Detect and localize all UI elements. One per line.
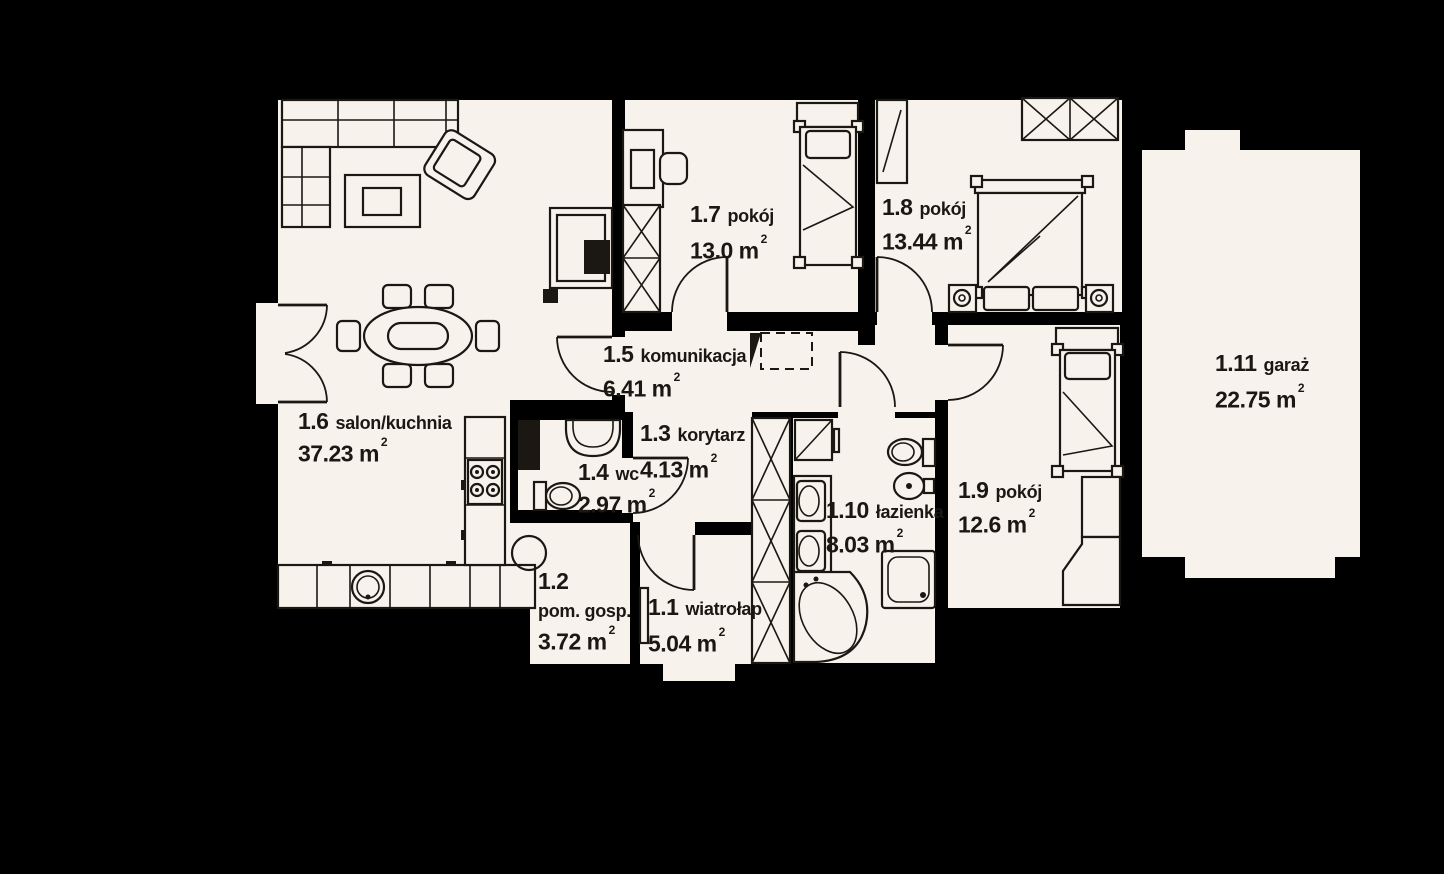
room-label-1-4: 1.4wc 2.97 m2 [578, 459, 653, 521]
room-title: 1.3korytarz [640, 418, 745, 452]
room-label-1-1: 1.1wiatrołap 5.04 m2 [648, 592, 762, 662]
room-area-sup: 2 [609, 623, 616, 637]
room-title: 1.9pokój [958, 476, 1042, 508]
room-area-value: 6.41 m [603, 375, 672, 401]
desk-top [623, 130, 663, 207]
doorway-wiatrolap [640, 522, 695, 535]
bed-post [794, 257, 805, 268]
bed-pillow [984, 287, 1029, 310]
room-name: łazienka [876, 502, 944, 522]
room-area: 2.97 m2 [578, 489, 653, 521]
room-name: pom. gosp. [538, 601, 631, 621]
coffee-table-outer [345, 175, 420, 227]
room-label-1-8: 1.8pokój 13.44 m2 [882, 193, 970, 259]
room-area-sup: 2 [1029, 506, 1036, 520]
room-area: 22.75 m2 [1215, 382, 1309, 418]
room-number: 1.3 [640, 420, 670, 446]
bed-headboard [1056, 328, 1118, 350]
room-name: pokój [995, 482, 1042, 502]
room-name: pokój [727, 206, 774, 226]
bed-headboard [797, 103, 858, 127]
room-title: 1.6salon/kuchnia [298, 408, 452, 438]
floor-corridor-room18 [875, 325, 935, 412]
room-title: 1.11garaż [1215, 348, 1309, 382]
room-area: 37.23 m2 [298, 438, 452, 470]
dining-chair [337, 321, 360, 351]
room-area: 3.72 m2 [538, 626, 631, 658]
room-number: 1.9 [958, 477, 988, 503]
room-area: 13.0 m2 [690, 233, 774, 269]
room-name-line: pom. gosp. [538, 598, 631, 626]
cabinet-handle [461, 480, 465, 490]
wardrobe [623, 205, 660, 312]
room-name: korytarz [677, 425, 745, 445]
room-name: wc [615, 464, 638, 484]
room-number: 1.1 [648, 594, 678, 620]
room-label-1-6: 1.6salon/kuchnia 37.23 m2 [298, 408, 452, 470]
room-name: pokój [919, 199, 966, 219]
room-title: 1.5komunikacja [603, 340, 746, 372]
room-title: 1.7pokój [690, 199, 774, 233]
room-label-1-2: 1.2 pom. gosp. 3.72 m2 [538, 568, 631, 658]
burner-dot [491, 470, 495, 474]
room-label-1-3: 1.3korytarz 4.13 m2 [640, 418, 745, 488]
sofa-vertical [282, 147, 330, 227]
room-area-sup: 2 [381, 435, 388, 449]
nightstand-right [1086, 285, 1113, 312]
room-area-value: 13.44 m [882, 228, 963, 254]
room-number: 1.4 [578, 459, 608, 485]
dresser [1082, 477, 1120, 537]
room-title: 1.2 [538, 568, 631, 598]
bidet-drain [906, 483, 912, 489]
room-number: 1.10 [826, 497, 869, 523]
room-title: 1.1wiatrołap [648, 592, 762, 626]
dining-chair [425, 285, 453, 308]
toilet-tank [923, 439, 935, 466]
dining-table [364, 307, 472, 365]
room-area: 8.03 m2 [826, 528, 943, 562]
room-title: 1.4wc [578, 459, 653, 489]
floor-plan-stage: 1.1wiatrołap 5.04 m2 1.2 pom. gosp. 3.72… [0, 0, 1444, 874]
mirror [877, 100, 907, 183]
room-area-sup: 2 [965, 223, 972, 237]
speaker-box [543, 289, 558, 303]
bed-rail [975, 180, 1085, 193]
room-label-1-5: 1.5komunikacja 6.41 m2 [603, 340, 746, 406]
bathtub-tap [814, 577, 819, 582]
sofa-horizontal [282, 100, 458, 147]
room-area: 13.44 m2 [882, 225, 970, 259]
double-bed [971, 176, 1093, 310]
room-number: 1.11 [1215, 350, 1257, 376]
room-name: salon/kuchnia [335, 413, 451, 433]
room-area-sup: 2 [761, 232, 768, 246]
room-label-1-7: 1.7pokój 13.0 m2 [690, 199, 774, 269]
washing-machine [795, 420, 839, 460]
cabinet-handle [461, 530, 465, 540]
wardrobe [1022, 98, 1118, 140]
nightstand-left [949, 285, 976, 312]
cabinet-handle [322, 561, 332, 565]
room-area-value: 8.03 m [826, 531, 895, 557]
floor-balcony-door-recess [256, 303, 278, 404]
bed-post [1082, 176, 1093, 187]
room-label-1-9: 1.9pokój 12.6 m2 [958, 476, 1042, 542]
shower-drain [920, 592, 926, 598]
room-area: 12.6 m2 [958, 508, 1042, 542]
dining-chair [383, 285, 411, 308]
room-number: 1.8 [882, 194, 912, 220]
floor-entry-porch [663, 663, 735, 681]
doorway-lazienka [838, 407, 895, 418]
tv-cabinet [543, 208, 612, 303]
room-area: 6.41 m2 [603, 372, 746, 406]
doorway-room-1-8 [877, 312, 932, 325]
room-area: 5.04 m2 [648, 626, 762, 662]
room-name: garaż [1264, 355, 1310, 375]
duct-shaft [518, 420, 540, 470]
desk-chair [660, 153, 687, 184]
bed-post [1112, 466, 1123, 477]
room-area-value: 12.6 m [958, 511, 1027, 537]
room-area-value: 13.0 m [690, 237, 759, 263]
room-number: 1.5 [603, 341, 633, 367]
room-area-value: 3.72 m [538, 628, 607, 654]
bed-post [971, 176, 982, 187]
room-title: 1.10łazienka [826, 496, 943, 528]
entry-door-leaf [640, 588, 648, 643]
single-bed [1052, 328, 1123, 477]
dining-chair [425, 364, 453, 387]
room-name: wiatrołap [685, 599, 761, 619]
room-area-value: 37.23 m [298, 440, 379, 466]
room-number: 1.7 [690, 201, 720, 227]
room-area-sup: 2 [897, 526, 904, 540]
burner-dot [475, 488, 479, 492]
cabinet-handle [446, 561, 456, 565]
dining-chair [383, 364, 411, 387]
bed-pillow [1065, 353, 1110, 379]
bed-pillow [1033, 287, 1078, 310]
doorway-room-1-7 [672, 312, 727, 331]
room-area-sup: 2 [1298, 381, 1305, 395]
room-area-value: 5.04 m [648, 630, 717, 656]
toilet-tank [534, 482, 546, 510]
room-number: 1.2 [538, 568, 568, 594]
bed-post [1052, 466, 1063, 477]
toilet [534, 482, 580, 510]
room-label-1-11: 1.11garaż 22.75 m2 [1215, 348, 1309, 418]
room-name: komunikacja [640, 346, 746, 366]
single-bed [794, 103, 863, 268]
bed-pillow [806, 131, 850, 158]
bathtub-tap [804, 583, 809, 588]
room-number: 1.6 [298, 408, 328, 434]
burner-dot [491, 488, 495, 492]
room-area-sup: 2 [711, 451, 718, 465]
room-title: 1.8pokój [882, 193, 970, 225]
bed-post [852, 257, 863, 268]
toilet [888, 439, 935, 466]
room-area-value: 22.75 m [1215, 386, 1296, 412]
bidet-tap [924, 479, 934, 493]
kitchen-faucet [366, 595, 371, 600]
coffee-table [345, 175, 420, 227]
room-area-value: 2.97 m [578, 491, 647, 517]
room-label-1-10: 1.10łazienka 8.03 m2 [826, 496, 943, 562]
room-area-sup: 2 [649, 486, 656, 500]
tv-screen [584, 240, 610, 274]
burner-dot [475, 470, 479, 474]
dining-chair [476, 321, 499, 351]
washbasin-bowl [566, 420, 620, 456]
room-area: 4.13 m2 [640, 452, 745, 488]
room-area-sup: 2 [674, 370, 681, 384]
doorway-room-1-9 [935, 345, 948, 400]
washbasin [566, 420, 620, 456]
room-area-sup: 2 [719, 625, 726, 639]
